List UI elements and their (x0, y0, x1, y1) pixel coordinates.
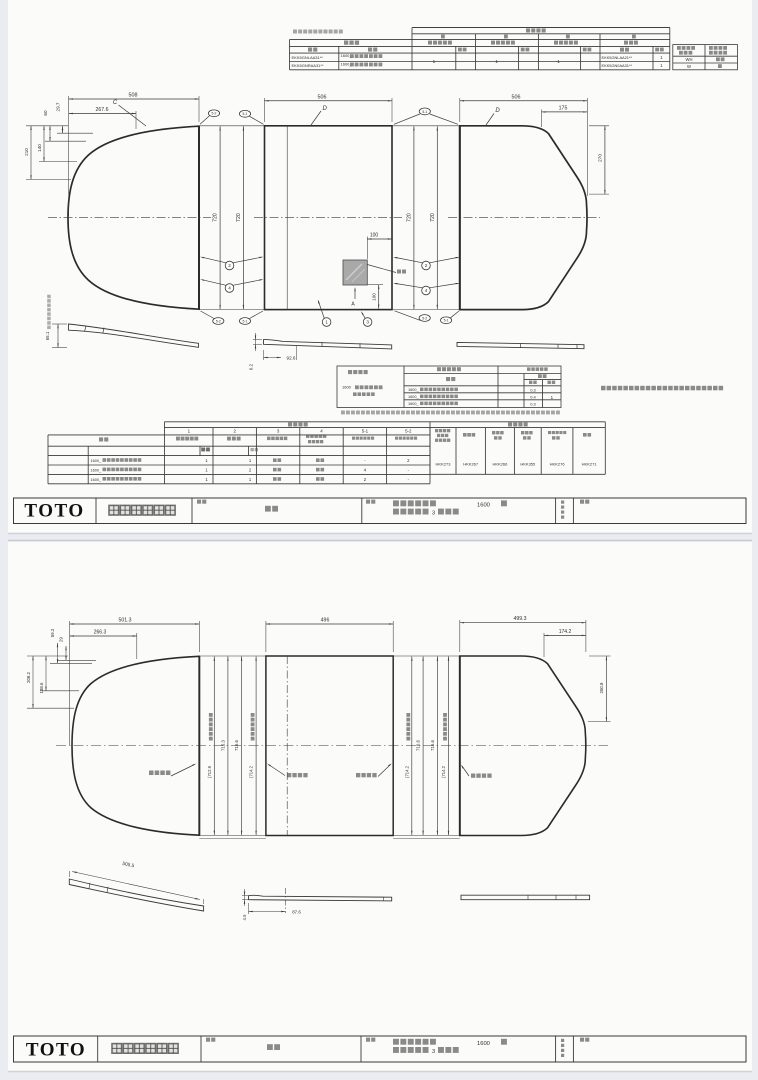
svg-text:65.1: 65.1 (45, 331, 50, 340)
svg-text:140: 140 (37, 144, 42, 152)
svg-text:29.7: 29.7 (55, 102, 60, 111)
svg-text:508: 508 (129, 93, 138, 99)
svg-text:TOTO: TOTO (26, 1040, 86, 1061)
svg-text:5-2: 5-2 (216, 319, 221, 323)
svg-text:716.6: 716.6 (234, 739, 239, 751)
svg-text:2: 2 (425, 263, 428, 268)
svg-text:210: 210 (24, 148, 29, 156)
svg-text:4.5: 4.5 (242, 914, 247, 920)
svg-text:5-2: 5-2 (422, 316, 427, 320)
svg-text:5-1: 5-1 (362, 429, 369, 434)
svg-text:(714.2: (714.2 (404, 765, 409, 778)
svg-text:W: W (687, 64, 691, 69)
svg-text:5-2: 5-2 (212, 112, 217, 116)
svg-text:EKK5GN0AA31**: EKK5GN0AA31** (602, 63, 633, 68)
svg-text:C: C (113, 100, 118, 106)
svg-text:270: 270 (597, 154, 603, 162)
svg-text:(712.9: (712.9 (207, 765, 212, 778)
svg-text:174.2: 174.2 (559, 629, 572, 635)
svg-text:59.2: 59.2 (50, 628, 55, 637)
svg-text:5-1: 5-1 (243, 319, 248, 323)
svg-text:1600_: 1600_ (408, 388, 419, 392)
svg-text:EKK5GNLAA31**: EKK5GNLAA31** (292, 55, 324, 60)
svg-text:D: D (323, 106, 328, 112)
svg-text:1600_: 1600_ (408, 402, 419, 406)
svg-text:266.3: 266.3 (94, 629, 107, 635)
svg-text:720: 720 (236, 213, 242, 222)
svg-text:506: 506 (318, 95, 327, 101)
svg-text:5-1: 5-1 (243, 112, 248, 116)
svg-text:1600_: 1600_ (91, 478, 102, 482)
svg-text:5-2: 5-2 (405, 429, 412, 434)
svg-text:1600: 1600 (342, 385, 352, 390)
svg-text:1: 1 (495, 59, 498, 64)
svg-text:501.3: 501.3 (119, 617, 132, 623)
svg-text:(714.2: (714.2 (249, 765, 254, 778)
svg-text:3: 3 (432, 511, 435, 517)
svg-text:EKK5GNLAA21**: EKK5GNLAA21** (602, 55, 633, 60)
svg-text:175: 175 (559, 106, 568, 112)
svg-text:3: 3 (366, 320, 369, 325)
svg-text:138.6: 138.6 (39, 682, 44, 694)
svg-text:506: 506 (512, 95, 521, 101)
svg-text:0.4: 0.4 (530, 394, 536, 399)
svg-text:D: D (495, 108, 500, 114)
svg-text:4: 4 (425, 288, 428, 293)
svg-text:5-1: 5-1 (444, 319, 449, 323)
svg-text:720: 720 (430, 213, 436, 222)
svg-text:716.6: 716.6 (416, 739, 421, 751)
svg-text:100: 100 (370, 233, 379, 239)
svg-text:1600_: 1600_ (408, 395, 419, 399)
svg-text:HKK276: HKK276 (550, 462, 566, 467)
svg-text:60: 60 (43, 110, 48, 116)
svg-text:6.2: 6.2 (248, 363, 253, 370)
svg-text:1: 1 (557, 59, 560, 64)
svg-text:(714.2: (714.2 (441, 765, 446, 778)
svg-text:260.8: 260.8 (599, 682, 604, 694)
svg-text:267.6: 267.6 (96, 107, 109, 113)
svg-text:496: 496 (321, 617, 330, 623)
svg-text:499.3: 499.3 (514, 616, 527, 622)
svg-text:HKK355: HKK355 (520, 462, 536, 467)
svg-text:0.3: 0.3 (530, 401, 536, 406)
svg-text:1600: 1600 (477, 1041, 490, 1047)
svg-text:1600_: 1600_ (91, 469, 102, 473)
svg-text:4: 4 (228, 286, 231, 291)
svg-text:720: 720 (213, 213, 219, 222)
svg-text:720: 720 (406, 213, 412, 222)
svg-text:92.6: 92.6 (287, 356, 296, 361)
svg-text:HKK273: HKK273 (436, 462, 452, 467)
svg-text:208.2: 208.2 (26, 671, 31, 683)
svg-text:87.6: 87.6 (292, 910, 301, 915)
svg-text:WH: WH (686, 57, 693, 62)
svg-text:716.6: 716.6 (430, 739, 435, 751)
svg-text:TOTO: TOTO (24, 501, 84, 522)
svg-text:0.3: 0.3 (530, 387, 536, 392)
svg-text:1: 1 (325, 320, 328, 325)
svg-text:1600: 1600 (477, 503, 490, 509)
svg-text:715.3: 715.3 (220, 739, 225, 751)
svg-text:HKK266: HKK266 (492, 462, 508, 467)
svg-text:1600_: 1600_ (91, 459, 102, 463)
svg-text:5-1: 5-1 (422, 110, 427, 114)
svg-text:1: 1 (433, 59, 436, 64)
svg-text:HKK271: HKK271 (582, 462, 598, 467)
svg-text:29: 29 (58, 637, 63, 642)
svg-text:HKK267: HKK267 (463, 462, 479, 467)
svg-text:100: 100 (371, 293, 376, 301)
svg-text:EKK5GNRAA31**: EKK5GNRAA31** (292, 63, 324, 68)
svg-text:2: 2 (228, 263, 231, 268)
svg-text:3: 3 (432, 1049, 435, 1055)
